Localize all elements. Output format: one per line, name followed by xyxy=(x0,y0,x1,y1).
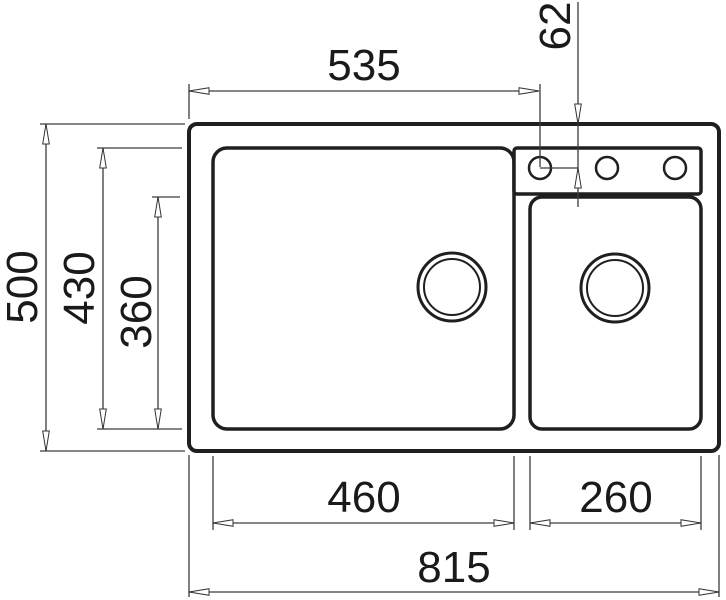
drawing-canvas: 535 62 500 430 360 xyxy=(0,0,726,600)
dim-right-bowl-depth: 360 xyxy=(112,197,180,429)
dim-label-62: 62 xyxy=(531,2,580,51)
dim-label-815: 815 xyxy=(417,543,490,592)
arrowhead-left xyxy=(530,520,550,527)
arrowhead-left xyxy=(213,520,233,527)
arrowhead-right xyxy=(494,520,514,527)
dim-label-500: 500 xyxy=(0,250,47,323)
dim-label-360: 360 xyxy=(112,275,161,348)
right-drain-inner-ring xyxy=(587,260,643,316)
arrowhead-right xyxy=(699,589,719,596)
dim-label-460: 460 xyxy=(327,473,400,522)
arrowhead-up xyxy=(155,197,162,217)
arrowhead-up xyxy=(43,124,50,144)
dim-label-535: 535 xyxy=(327,41,400,90)
arrowhead-up xyxy=(100,148,107,168)
sink-technical-drawing: 535 62 500 430 360 xyxy=(0,0,726,600)
left-drain-inner-ring xyxy=(424,259,480,315)
arrowhead-right xyxy=(681,520,701,527)
arrowhead-right xyxy=(519,88,539,95)
arrowhead-down xyxy=(155,409,162,429)
tap-hole-2 xyxy=(596,157,618,179)
dim-left-bowl-width: 460 xyxy=(213,456,514,530)
arrowhead-down xyxy=(575,104,582,124)
dim-label-260: 260 xyxy=(579,473,652,522)
dim-right-bowl-width: 260 xyxy=(530,456,701,530)
dim-label-430: 430 xyxy=(55,251,104,324)
sink-shapes xyxy=(189,124,719,451)
arrowhead-down xyxy=(43,431,50,451)
arrowhead-down xyxy=(100,409,107,429)
arrowhead-left xyxy=(189,88,209,95)
tap-hole-3 xyxy=(664,157,686,179)
arrowhead-left xyxy=(189,589,209,596)
